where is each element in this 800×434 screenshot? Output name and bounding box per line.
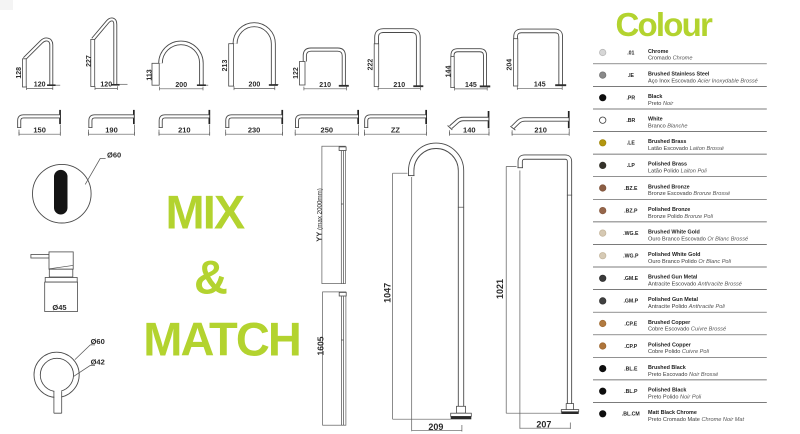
svg-text:250: 250 <box>321 125 334 134</box>
svg-text:Polished Gun Metal: Polished Gun Metal <box>648 297 699 303</box>
svg-text:Polished Brass: Polished Brass <box>648 162 687 168</box>
svg-text:.CP.E: .CP.E <box>624 321 637 327</box>
svg-text:.CP.P: .CP.P <box>624 344 637 350</box>
svg-text:Polished Bronze: Polished Bronze <box>648 207 690 213</box>
svg-text:Cromado Chrome: Cromado Chrome <box>648 56 692 62</box>
svg-text:Preto Escovado Noir Brossé: Preto Escovado Noir Brossé <box>648 372 718 378</box>
svg-text:230: 230 <box>248 125 261 134</box>
svg-text:Branco Blanche: Branco Blanche <box>648 123 688 129</box>
svg-text:Latão Escovado Laiton Brossé: Latão Escovado Laiton Brossé <box>648 146 724 152</box>
svg-text:222: 222 <box>368 59 375 71</box>
svg-text:.LE: .LE <box>627 141 636 147</box>
svg-text:200: 200 <box>249 82 261 89</box>
svg-text:.LP: .LP <box>627 163 636 169</box>
svg-text:.PR: .PR <box>626 96 635 102</box>
svg-text:1021: 1021 <box>495 279 505 299</box>
svg-text:113: 113 <box>146 69 153 80</box>
svg-text:.BL.E: .BL.E <box>624 366 638 372</box>
svg-text:210: 210 <box>393 82 405 89</box>
svg-text:.GM.E: .GM.E <box>623 276 638 282</box>
svg-text:145: 145 <box>534 82 546 89</box>
svg-text:145: 145 <box>465 82 477 89</box>
svg-text:144: 144 <box>445 66 452 78</box>
svg-text:MIX: MIX <box>165 185 244 238</box>
svg-text:Cobre Escovado Cuivre Brossé: Cobre Escovado Cuivre Brossé <box>648 327 726 333</box>
svg-text:210: 210 <box>178 125 191 134</box>
svg-text:Ouro Branco Polido Or Blanc Po: Ouro Branco Polido Or Blanc Poli <box>648 259 732 265</box>
svg-text:Chrome: Chrome <box>648 49 668 55</box>
svg-text:Matt Black Chrome: Matt Black Chrome <box>648 410 697 416</box>
svg-text:Preto Polido Noir Poli: Preto Polido Noir Poli <box>648 394 702 400</box>
svg-text:128: 128 <box>16 67 23 79</box>
svg-text:Ø45: Ø45 <box>52 303 66 312</box>
svg-text:209: 209 <box>428 422 443 432</box>
svg-text:Brushed Gun Metal: Brushed Gun Metal <box>648 275 698 281</box>
svg-text:140: 140 <box>463 125 476 134</box>
svg-text:ZZ: ZZ <box>391 125 401 134</box>
svg-text:MATCH: MATCH <box>143 313 300 366</box>
svg-text:210: 210 <box>534 125 547 134</box>
svg-text:200: 200 <box>175 82 187 89</box>
svg-text:120: 120 <box>100 82 112 89</box>
svg-text:Bronze Polido Bronze Poli: Bronze Polido Bronze Poli <box>648 214 714 220</box>
svg-text:.BZ.P: .BZ.P <box>624 208 638 214</box>
svg-text:Ouro Branco Escovado Or Blanc: Ouro Branco Escovado Or Blanc Brossé <box>648 236 748 242</box>
svg-text:.WG.E: .WG.E <box>623 231 639 237</box>
svg-text:.IE: .IE <box>628 73 635 79</box>
svg-text:122: 122 <box>293 67 300 79</box>
svg-text:213: 213 <box>222 60 229 72</box>
svg-text:Ø42: Ø42 <box>91 358 105 367</box>
svg-text:&: & <box>194 251 228 304</box>
svg-text:.BL.P: .BL.P <box>624 389 638 395</box>
svg-text:Brushed Copper: Brushed Copper <box>648 320 691 326</box>
svg-text:Antracite Polido Anthracite Po: Antracite Polido Anthracite Poli <box>648 304 726 310</box>
svg-text:Ø60: Ø60 <box>91 337 105 346</box>
svg-text:Brushed White Gold: Brushed White Gold <box>648 229 700 235</box>
svg-text:190: 190 <box>105 125 118 134</box>
svg-text:204: 204 <box>506 59 513 71</box>
svg-text:.BL.CM: .BL.CM <box>622 412 640 418</box>
svg-text:Brushed Brass: Brushed Brass <box>648 139 686 145</box>
svg-text:Brushed Stainless Steel: Brushed Stainless Steel <box>648 71 710 77</box>
svg-text:Preto Cromado Mate Chrome Noir: Preto Cromado Mate Chrome Noir Mat <box>648 417 745 423</box>
svg-text:Preto Noir: Preto Noir <box>648 101 674 107</box>
svg-text:1605: 1605 <box>315 336 325 355</box>
svg-text:150: 150 <box>33 125 46 134</box>
svg-text:Brushed Bronze: Brushed Bronze <box>648 184 690 190</box>
svg-text:Aço Inox Escovado Acier Inoxyd: Aço Inox Escovado Acier Inoxydable Bross… <box>648 78 758 84</box>
svg-text:White: White <box>648 117 663 123</box>
svg-text:120: 120 <box>34 82 46 89</box>
svg-text:210: 210 <box>319 82 331 89</box>
svg-text:.WG.P: .WG.P <box>623 254 639 260</box>
svg-text:.BR: .BR <box>626 118 635 124</box>
svg-text:1047: 1047 <box>382 283 392 303</box>
svg-text:YY (max 2000mm): YY (max 2000mm) <box>314 188 323 242</box>
svg-text:Brushed Black: Brushed Black <box>648 365 686 371</box>
svg-text:Colour: Colour <box>616 6 713 43</box>
svg-text:Antracite Escovado Anthracite: Antracite Escovado Anthracite Brossé <box>648 282 742 288</box>
svg-text:Polished Copper: Polished Copper <box>648 342 692 348</box>
svg-text:Black: Black <box>648 94 662 100</box>
svg-text:Ø60: Ø60 <box>107 150 121 159</box>
svg-text:207: 207 <box>536 420 551 430</box>
svg-text:Polished White Gold: Polished White Gold <box>648 252 700 258</box>
svg-text:Polished Black: Polished Black <box>648 388 686 394</box>
svg-text:.BZ.E: .BZ.E <box>624 186 638 192</box>
svg-text:.01: .01 <box>627 50 634 56</box>
svg-text:Latão Polido Laiton Poli: Latão Polido Laiton Poli <box>648 169 708 175</box>
svg-text:Bronze Escovado Bronze Brossé: Bronze Escovado Bronze Brossé <box>648 191 730 197</box>
svg-text:.GM.P: .GM.P <box>623 299 638 305</box>
svg-text:227: 227 <box>86 55 93 67</box>
svg-text:Cobre Polido Cuivre Poli: Cobre Polido Cuivre Poli <box>648 349 710 355</box>
